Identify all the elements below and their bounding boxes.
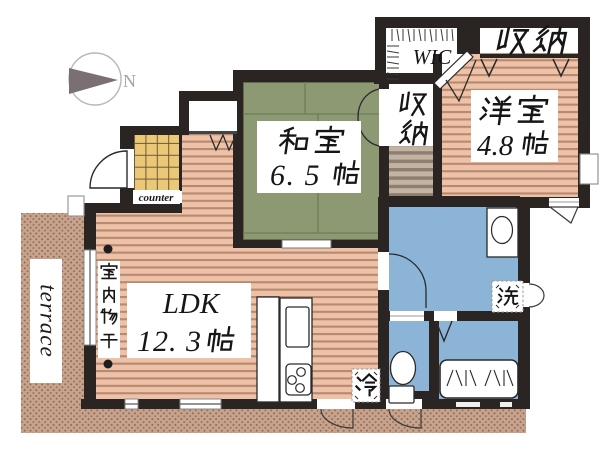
svg-text:N: N xyxy=(123,71,136,91)
svg-text:LDK: LDK xyxy=(162,288,221,320)
svg-text:terrace: terrace xyxy=(36,284,61,357)
svg-text:WIC: WIC xyxy=(413,45,452,69)
svg-text:4.8: 4.8 xyxy=(477,130,514,162)
svg-text:12. 3: 12. 3 xyxy=(137,325,202,358)
svg-text:counter: counter xyxy=(139,192,175,204)
svg-text:6. 5: 6. 5 xyxy=(270,159,321,192)
